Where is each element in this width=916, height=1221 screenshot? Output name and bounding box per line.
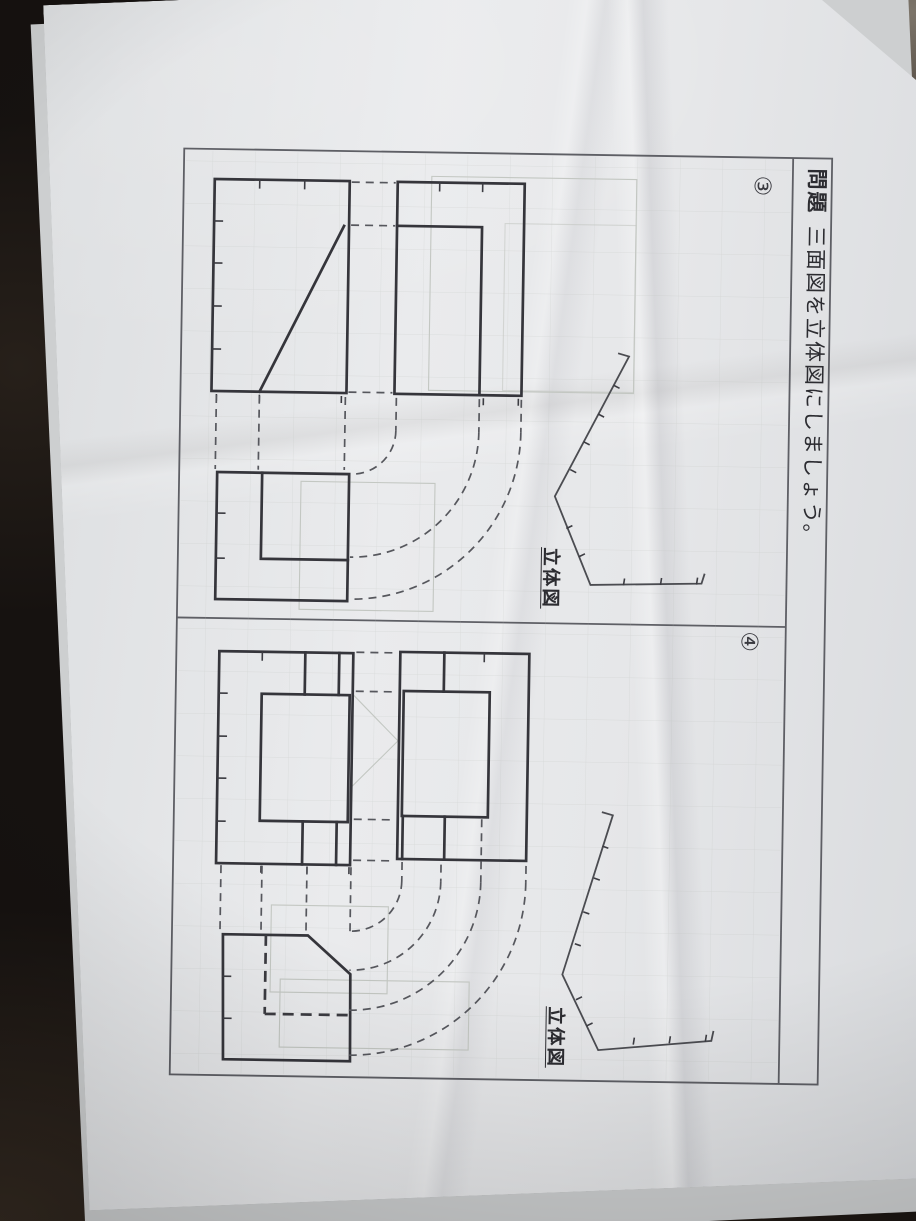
problem3-number: ③ [749, 175, 775, 196]
problem-label: 問題 [804, 168, 829, 214]
worksheet-content: 問題三面図を立体図にしましょう。 ③ ④ 立体図 立体図 [0, 0, 916, 1221]
instruction-text: 三面図を立体図にしましょう。 [799, 226, 828, 547]
problem4-number: ④ [735, 631, 761, 652]
problem4-figure-label: 立体図 [543, 1006, 570, 1068]
worksheet-drawing [0, 0, 916, 1221]
problem3-figure-label: 立体図 [538, 547, 565, 609]
photo-of-worksheet: 問題三面図を立体図にしましょう。 ③ ④ 立体図 立体図 [0, 0, 916, 1221]
